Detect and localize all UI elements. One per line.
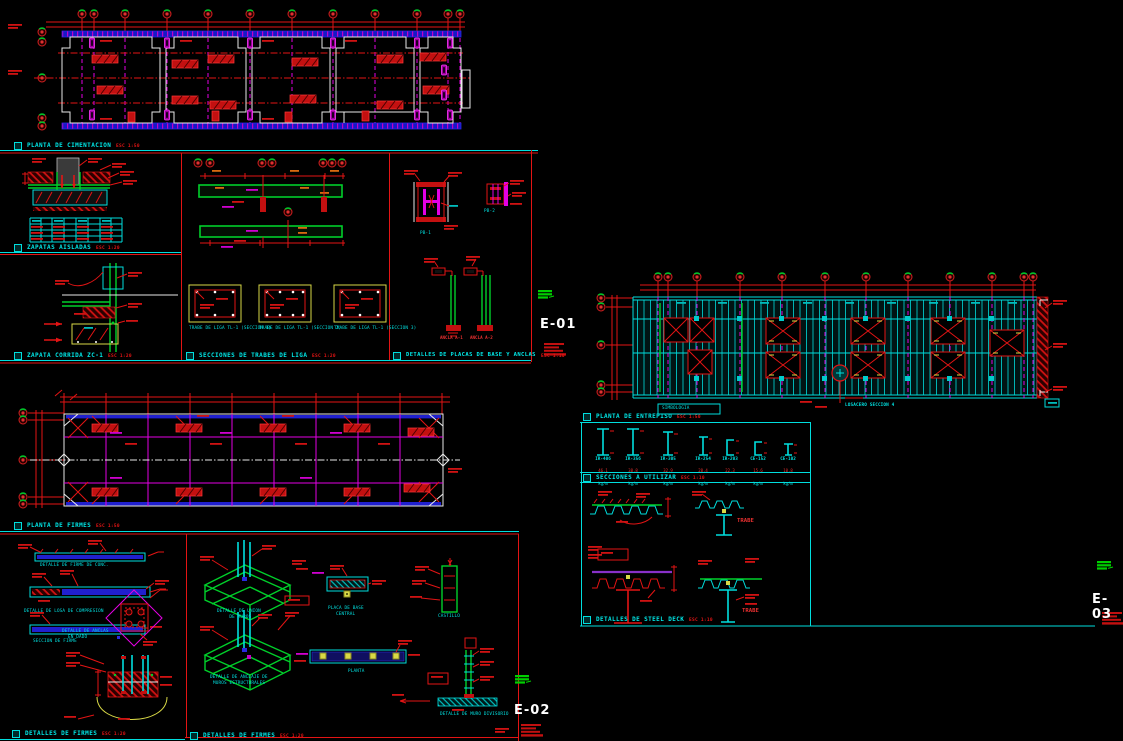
label-ancla-2: ANCLA A-2 bbox=[470, 336, 493, 340]
detail-placa-base-muro bbox=[312, 565, 386, 597]
title-text: SECCIONES DE TRABES DE LIGA bbox=[199, 353, 307, 359]
caption-muro-divisorio: DETALLE DE MURO DIVISORIO bbox=[440, 712, 509, 716]
title-planta-cimentacion: PLANTA DE CIMENTACION ESC 1:50 bbox=[14, 142, 143, 150]
profile-label-0: IR-406 46.1 kg/m bbox=[591, 457, 615, 488]
title-scale: ESC 1:20 bbox=[108, 354, 132, 359]
profile-label-2: IR-305 32.9 kg/m bbox=[656, 457, 680, 488]
detail-zapata-aislada bbox=[22, 158, 137, 242]
label-trabe-2: TRABE bbox=[742, 608, 759, 614]
title-marker bbox=[583, 616, 591, 624]
detail-castillo bbox=[410, 558, 457, 612]
sheet-divider-lines bbox=[0, 150, 1095, 741]
caption-pb2: PB-2 bbox=[484, 209, 495, 213]
caption-planta: PLANTA bbox=[348, 669, 364, 673]
title-scale: ESC 1:20 bbox=[280, 734, 304, 739]
title-text: PLANTA DE CIMENTACION bbox=[27, 143, 111, 149]
title-scale: ESC 1:20 bbox=[96, 246, 120, 251]
profile-label-4: IR-203 22.3 kg/m bbox=[718, 457, 742, 488]
cad-canvas: PLANTA DE CIMENTACION ESC 1:50 ZAPATAS A… bbox=[0, 0, 1123, 741]
caption-castillo: CASTILLO bbox=[438, 614, 460, 618]
caption-anclas-dado-2: EN DADO bbox=[68, 635, 87, 639]
title-marker bbox=[12, 730, 20, 738]
title-detalles-firmes-der: DETALLES DE FIRMES ESC 1:20 bbox=[190, 732, 307, 740]
label-ancla-1: ANCLA A-1 bbox=[440, 336, 463, 340]
caption-placa-base-1: PLACA DE BASE bbox=[328, 606, 364, 610]
title-detalles-steel-deck: DETALLES DE STEEL DECK ESC 1:10 bbox=[583, 616, 716, 624]
caption-pb1: PB-1 bbox=[420, 231, 431, 235]
title-detalles-placas: DETALLES DE PLACAS DE BASE Y ANCLAS ESC … bbox=[393, 352, 567, 360]
sheet-number-e03: E-03 bbox=[1092, 592, 1123, 622]
detail-anclas-dado bbox=[106, 590, 168, 646]
title-text: DETALLES DE FIRMES bbox=[25, 731, 97, 737]
title-scale: ESC 1:50 bbox=[96, 524, 120, 529]
caption-placa-base-2: CENTRAL bbox=[336, 612, 355, 616]
title-text: PLANTA DE ENTREPISO bbox=[596, 414, 672, 420]
plan-entrepiso-drawing bbox=[597, 273, 1067, 414]
detail-anclas bbox=[424, 256, 493, 336]
title-text: DETALLES DE PLACAS DE BASE Y ANCLAS bbox=[406, 353, 536, 359]
detail-trabes-liga bbox=[189, 159, 386, 322]
caption-anclaje-muros-2: MUROS ESTRUCTURALES bbox=[213, 681, 259, 685]
title-scale: ESC 1:20 bbox=[102, 732, 126, 737]
title-planta-firmes: PLANTA DE FIRMES ESC 1:50 bbox=[14, 522, 123, 530]
steel-deck-details bbox=[588, 491, 762, 623]
profile-label-6: CE-102 10.8 kg/m bbox=[776, 457, 800, 488]
sheet-number-e02: E-02 bbox=[514, 703, 550, 718]
caption-anclaje-muros-1: DETALLE DE ANCLAJE DE bbox=[210, 675, 260, 679]
sheet-number-e01: E-01 bbox=[540, 317, 576, 332]
title-text: ZAPATAS AISLADAS bbox=[27, 245, 91, 251]
detail-placas-base bbox=[404, 170, 526, 230]
trabe-seccion-2 bbox=[259, 285, 311, 322]
detail-dado-seccion bbox=[64, 652, 172, 720]
profile-label-1: IR-356 38.8 kg/m bbox=[621, 457, 645, 488]
note-simbologia: SIMBOLOGIA bbox=[662, 406, 689, 410]
title-detalles-firmes-izq: DETALLES DE FIRMES ESC 1:20 bbox=[12, 730, 129, 738]
title-secciones-trabes: SECCIONES DE TRABES DE LIGA ESC 1:20 bbox=[186, 352, 339, 360]
detail-muro-divisorio bbox=[392, 638, 497, 711]
profile-label-5: CE-152 15.6 kg/m bbox=[746, 457, 770, 488]
title-zapatas-aisladas: ZAPATAS AISLADAS ESC 1:20 bbox=[14, 244, 123, 252]
trabe-seccion-3 bbox=[334, 285, 386, 322]
cad-linework bbox=[0, 0, 1123, 741]
caption-anclas-dado-1: DETALLE DE ANCLAS bbox=[62, 629, 109, 633]
title-scale: ESC 1:50 bbox=[677, 415, 701, 420]
caption-firme-conc: DETALLE DE FIRME DE CONC. bbox=[40, 563, 109, 567]
plan-firmes-drawing bbox=[19, 390, 462, 508]
title-marker bbox=[14, 244, 22, 252]
title-scale: ESC 1:50 bbox=[116, 144, 140, 149]
title-text: ZAPATA CORRIDA ZC-1 bbox=[27, 353, 103, 359]
note-losacero: LOSACERO SECCION 4 bbox=[845, 403, 894, 407]
title-marker bbox=[190, 732, 198, 740]
caption-union-muros-1: DETALLE DE UNION bbox=[217, 609, 260, 613]
title-marker bbox=[393, 352, 401, 360]
title-zapata-corrida: ZAPATA CORRIDA ZC-1 ESC 1:20 bbox=[14, 352, 135, 360]
detail-zapata-corrida bbox=[44, 263, 178, 352]
title-text: DETALLES DE STEEL DECK bbox=[596, 617, 684, 623]
trabe-seccion-1 bbox=[189, 285, 241, 322]
title-marker bbox=[583, 413, 591, 421]
title-scale: ESC 1:20 bbox=[312, 354, 336, 359]
title-scale: ESC 1:10 bbox=[689, 618, 713, 623]
plan-cimentacion-drawing bbox=[8, 10, 470, 130]
title-marker bbox=[14, 352, 22, 360]
caption-trabe-seccion-3: TRABE DE LIGA TL-1 (SECCION 3) bbox=[334, 326, 416, 330]
label-trabe-1: TRABE bbox=[737, 518, 754, 524]
caption-trabe-seccion-2: TRABE DE LIGA TL-1 (SECCION 2) bbox=[259, 326, 341, 330]
caption-seccion-firme: SECCION DE FIRME bbox=[33, 639, 77, 643]
title-planta-entrepiso: PLANTA DE ENTREPISO ESC 1:50 bbox=[583, 413, 704, 421]
detail-planta-anclas bbox=[296, 640, 420, 663]
title-text: PLANTA DE FIRMES bbox=[27, 523, 91, 529]
zapatas-table bbox=[30, 218, 122, 242]
title-marker bbox=[14, 142, 22, 150]
title-scale: ESC 1:10 bbox=[541, 354, 565, 359]
profile-label-3: IR-254 28.4 kg/m bbox=[691, 457, 715, 488]
title-text: DETALLES DE FIRMES bbox=[203, 733, 275, 739]
title-marker bbox=[14, 522, 22, 530]
caption-losa-compresion: DETALLE DE LOSA DE COMPRESION bbox=[24, 609, 104, 613]
steel-profiles bbox=[597, 429, 797, 455]
title-marker bbox=[186, 352, 194, 360]
caption-union-muros-2: DE MUROS bbox=[226, 615, 255, 619]
